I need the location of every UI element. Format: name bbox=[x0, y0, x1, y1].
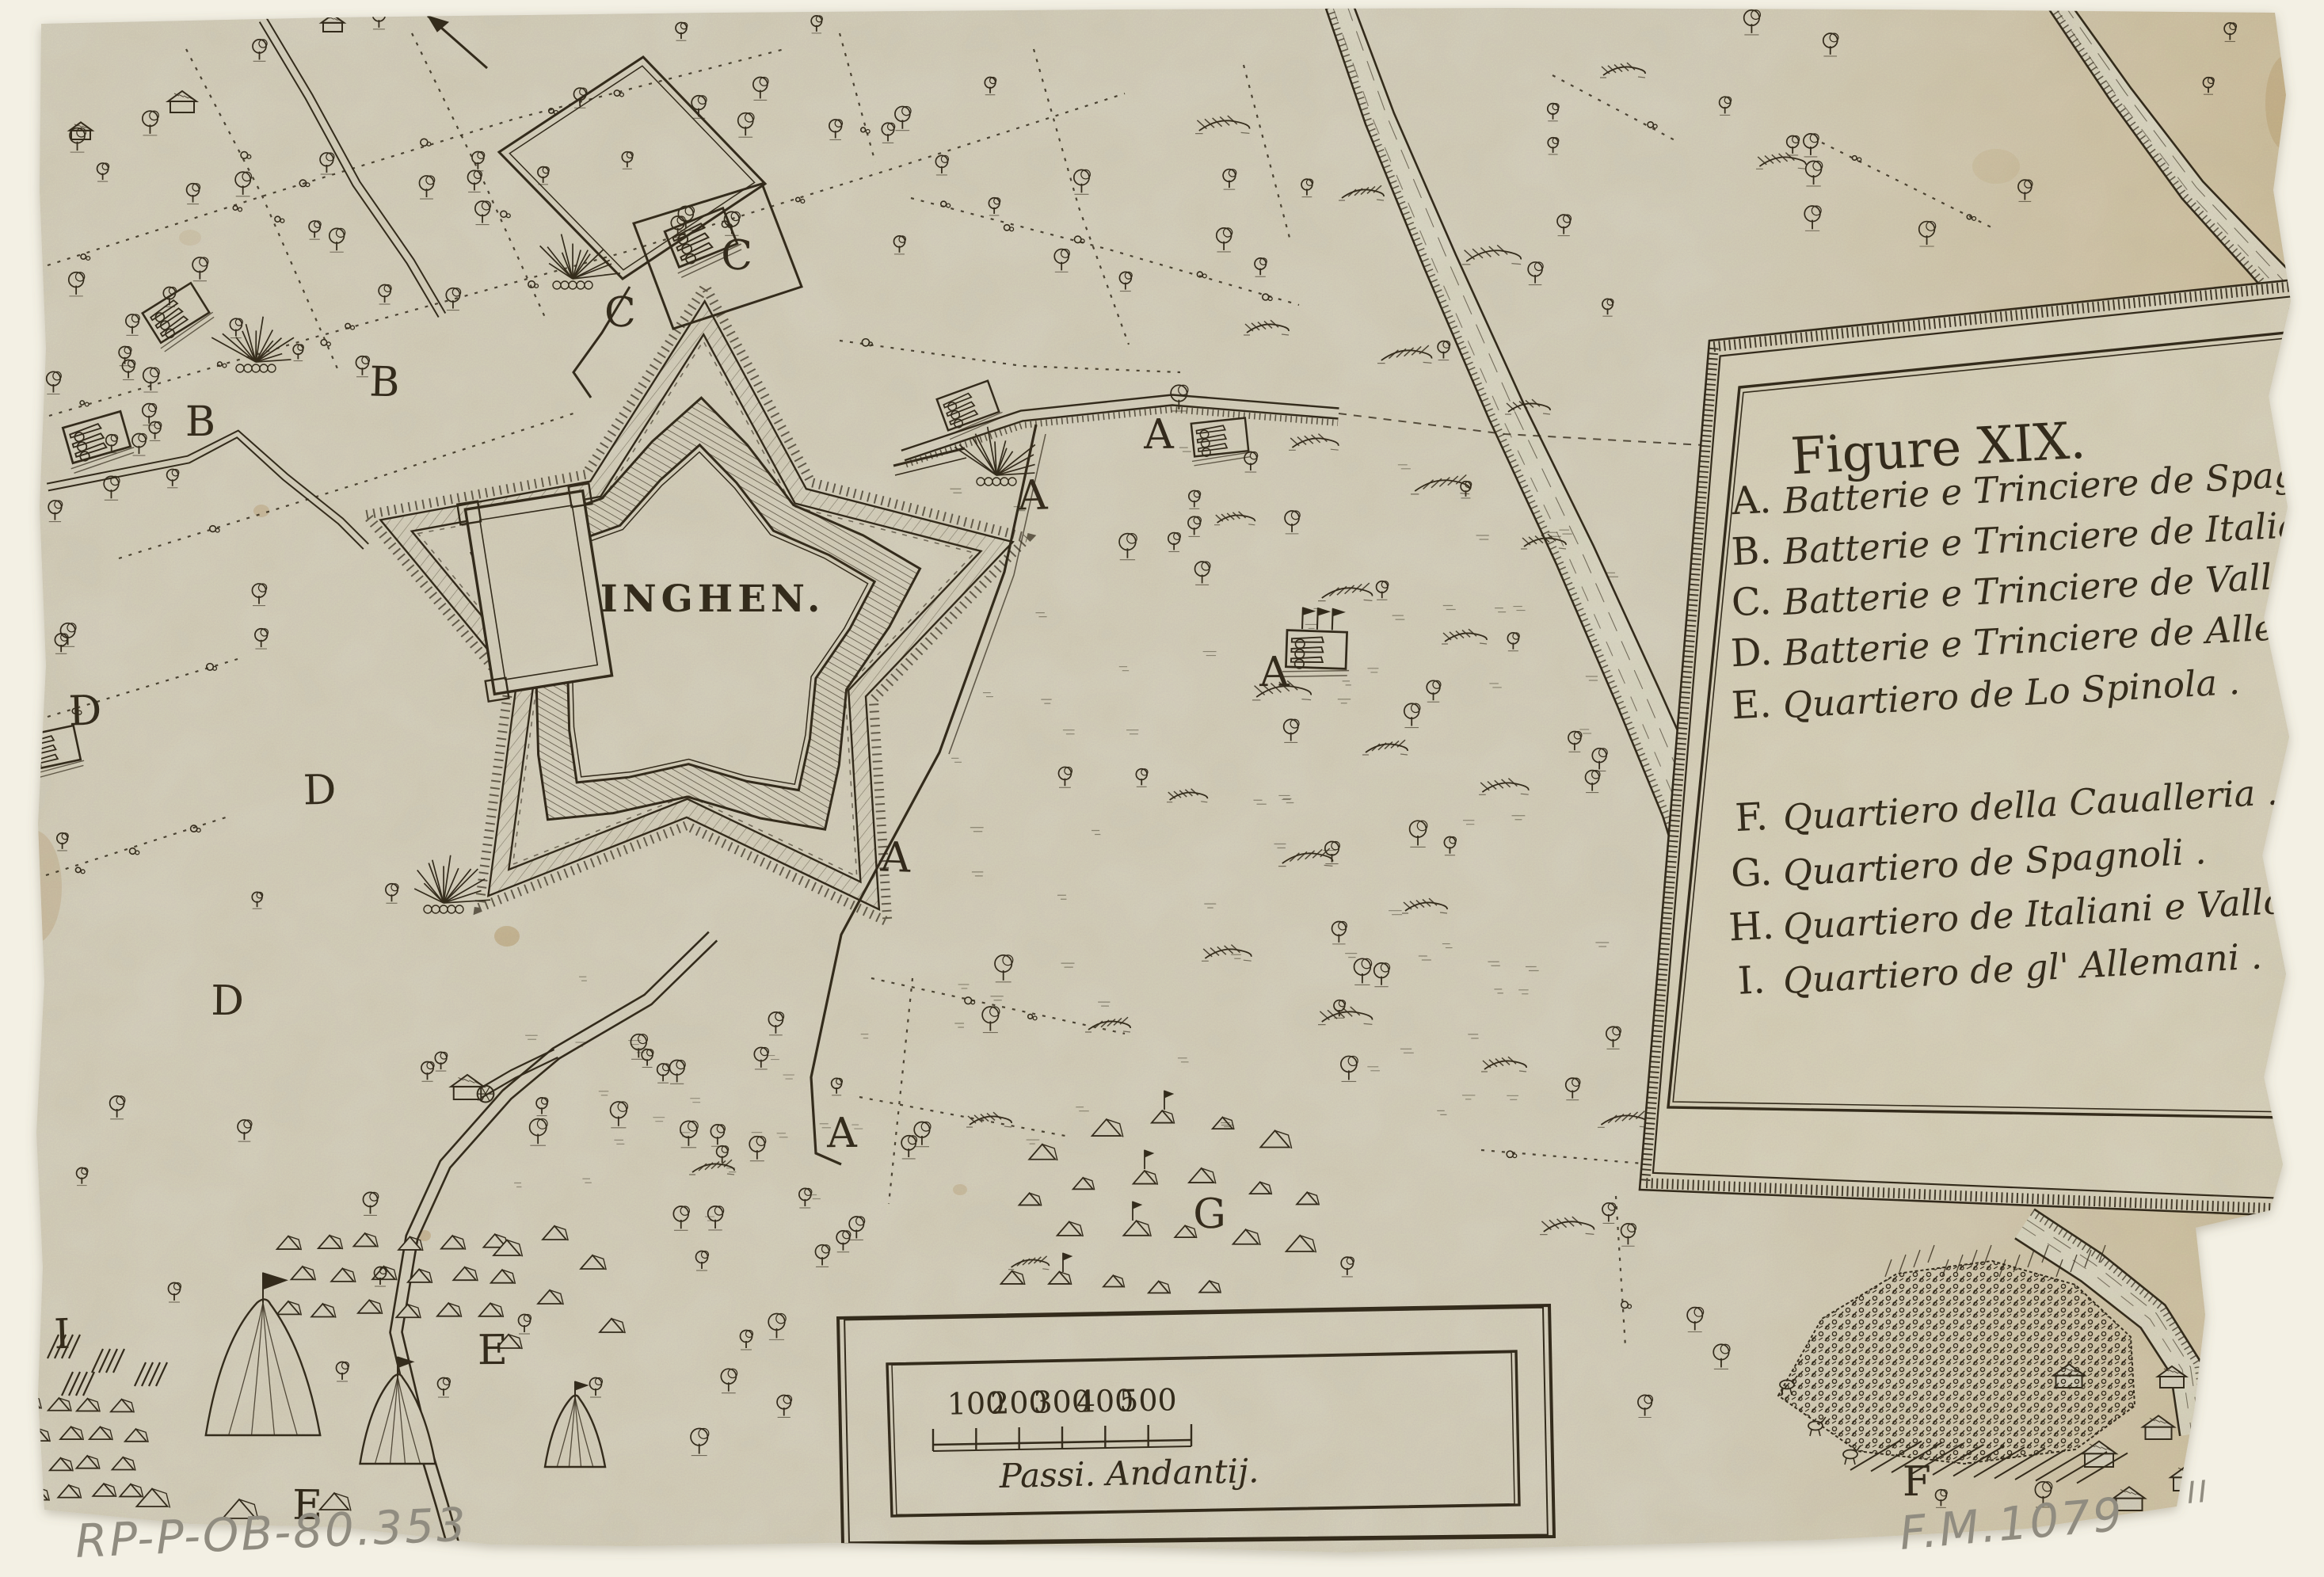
catalog-number-superscript: II bbox=[2185, 1474, 2211, 1510]
etched-siege-map-scan: LINGHEN. Figure XIX. A.Batterie e Trinci… bbox=[0, 0, 2324, 1577]
engraving: LINGHEN. Figure XIX. A.Batterie e Trinci… bbox=[0, 0, 2324, 1577]
paper-grain bbox=[0, 0, 2324, 1577]
map-canvas: LINGHEN. Figure XIX. A.Batterie e Trinci… bbox=[0, 0, 2324, 1577]
